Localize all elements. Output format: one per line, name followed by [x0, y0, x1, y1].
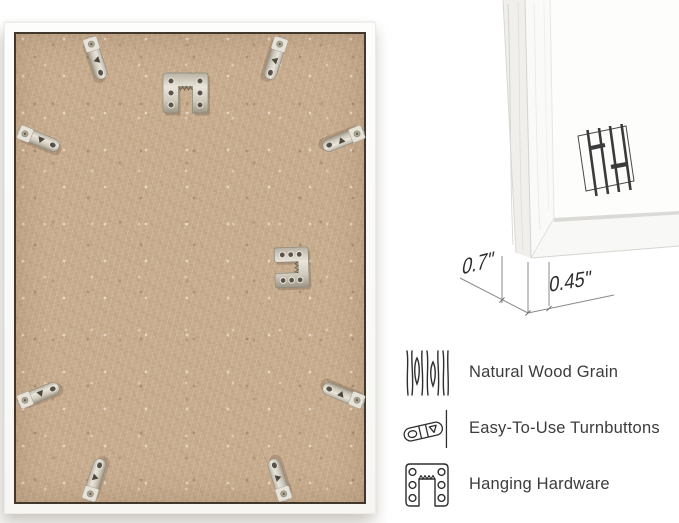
feature-item-turnbuttons: Easy-To-Use Turnbuttons: [402, 405, 676, 452]
feature-label: Easy-To-Use Turnbuttons: [469, 419, 660, 438]
feature-item-hanging-hardware: Hanging Hardware: [402, 461, 676, 508]
turnbutton-icon: [402, 406, 452, 452]
feature-label: Natural Wood Grain: [469, 363, 618, 382]
feature-list: Natural Wood Grain Easy-To-Use Turnbutto…: [402, 349, 676, 517]
frame-hardware: [5, 23, 377, 515]
hanging-hardware-icon: [402, 462, 452, 508]
sawtooth-hanger: [163, 73, 210, 116]
turnbutton: [317, 377, 367, 410]
turnbutton: [264, 453, 294, 503]
wood-grain-icon: [402, 350, 452, 396]
turnbutton: [15, 124, 65, 157]
hanging-bracket: [274, 247, 311, 291]
turnbutton: [80, 35, 110, 85]
feature-item-wood-grain: Natural Wood Grain: [402, 349, 676, 396]
turnbutton: [317, 123, 367, 156]
feature-label: Hanging Hardware: [469, 475, 610, 494]
turnbutton: [81, 454, 111, 504]
frame-back-photo: [4, 22, 376, 514]
turnbutton: [15, 379, 65, 412]
product-image: 0.7" 0.45" Natural Wood Grain: [0, 0, 679, 523]
turnbutton: [259, 34, 289, 84]
